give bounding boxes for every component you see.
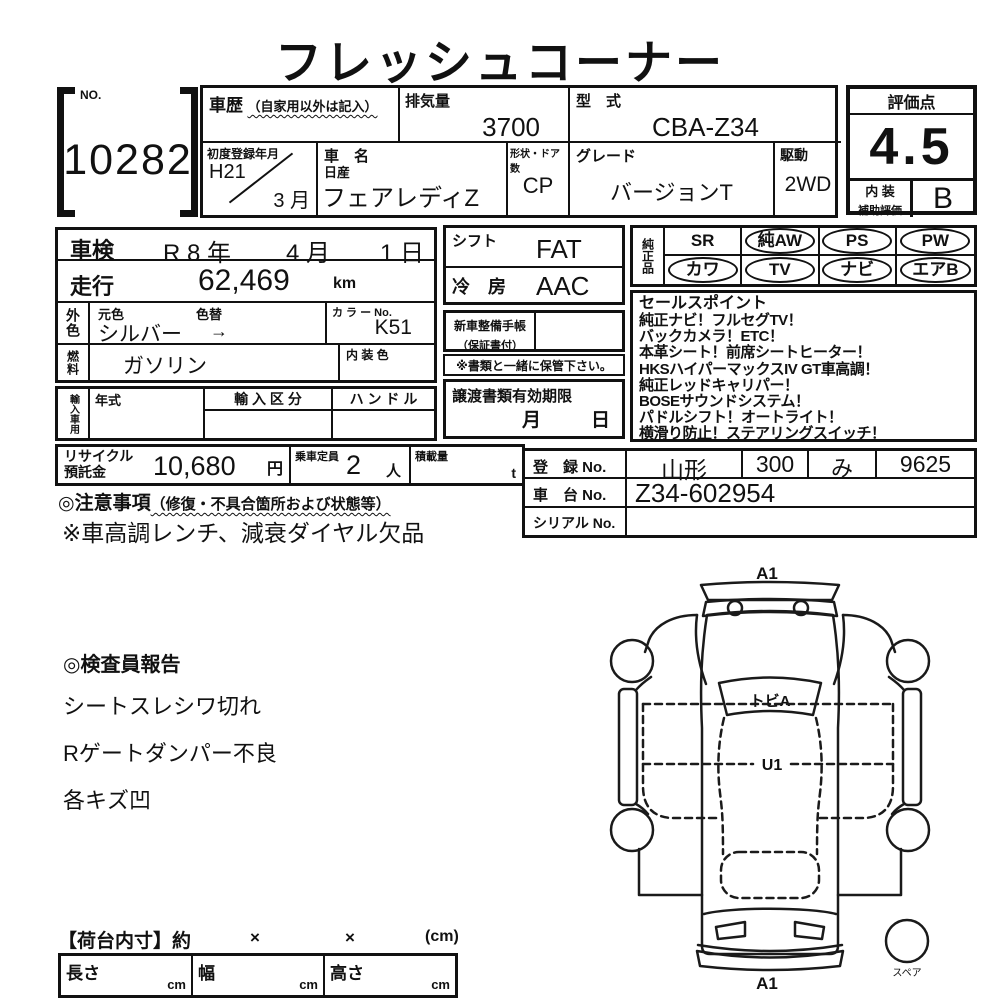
displacement-cell: 排気量 3700 bbox=[400, 88, 570, 143]
history-label: 車歴 bbox=[209, 96, 243, 115]
cargo-height-cell: 高さ cm bbox=[325, 956, 455, 995]
first-reg-label: 初度登録年月 bbox=[207, 145, 279, 162]
genuine-parts-grid: SR 純AW PS PW カワ TV ナビ エアB bbox=[665, 228, 974, 284]
chassis-number: Z34-602954 bbox=[625, 479, 974, 508]
import-division-cell: 輸 入 区 分 bbox=[205, 389, 333, 438]
chassis-row: 車 台 No. Z34-602954 bbox=[525, 479, 974, 508]
interior-color-cell: 内 装 色 bbox=[338, 345, 434, 380]
history-note: （自家用以外は記入） bbox=[247, 99, 377, 114]
sales-point-line: バックカメラ！ETC！ bbox=[639, 329, 968, 345]
capacity-cell: 乗車定員 2 人 bbox=[291, 447, 411, 483]
genuine-parts-side-label: 純正品 bbox=[633, 228, 665, 284]
body-door-cell: 形状・ドア数 CP bbox=[508, 143, 570, 215]
auction-sheet: フレッシュコーナー NO. 10282 車歴 （自家用以外は記入） 排気量 37… bbox=[0, 0, 1000, 1000]
cargo-length-cell: 長さ cm bbox=[61, 956, 193, 995]
fuel-value: ガソリン bbox=[123, 350, 207, 380]
registration-number: 9625 bbox=[875, 451, 974, 479]
diagram-label-windshield: トビA bbox=[750, 693, 791, 710]
car-damage-diagram: A1 トビA U1 A1 bbox=[595, 558, 985, 993]
ac-value: AAC bbox=[536, 271, 589, 302]
diagram-label-center: U1 bbox=[762, 757, 783, 774]
part-kawa: カワ bbox=[668, 257, 738, 283]
diagram-label-spare: スペア bbox=[892, 968, 921, 979]
cargo-table: 長さ cm 幅 cm 高さ cm bbox=[58, 953, 458, 998]
spare-tire-icon bbox=[886, 920, 928, 962]
registration-label: 登 録 No. bbox=[533, 456, 606, 477]
diagram-label-bottom: A1 bbox=[756, 974, 778, 993]
rating-score: 4.5 bbox=[850, 115, 973, 181]
import-side-label: 輸入車用 bbox=[58, 389, 90, 438]
cargo-x2: × bbox=[345, 928, 355, 948]
color-arrow: → bbox=[210, 321, 228, 342]
cargo-length-label: 長さ bbox=[66, 959, 100, 984]
grade-value: バージョンT bbox=[570, 175, 773, 207]
service-book-note: ※書類と一緒に保管下さい。 bbox=[443, 354, 625, 376]
chassis-label: 車 台 No. bbox=[533, 484, 606, 505]
lot-number: 10282 bbox=[60, 136, 196, 185]
sales-point-line: 本革シート！前席シートヒーター！ bbox=[639, 345, 968, 361]
color-no-cell: カ ラ ー No. K51 bbox=[325, 303, 434, 343]
body-door-label: 形状・ドア数 bbox=[510, 145, 568, 175]
mileage-unit: km bbox=[333, 275, 356, 293]
mileage-label: 走行 bbox=[70, 269, 114, 301]
grade-label: グレード bbox=[576, 145, 636, 166]
drive-value: 2WD bbox=[775, 173, 841, 197]
registration-class: 300 bbox=[741, 451, 807, 479]
registration-row: 登 録 No. 山形 300 み 9625 bbox=[525, 451, 974, 479]
page-title: フレッシュコーナー bbox=[0, 24, 1000, 93]
ac-label: 冷 房 bbox=[452, 273, 506, 299]
shift-label: シフト bbox=[452, 230, 497, 251]
notes-title-note: （修復・不具合箇所および状態等） bbox=[151, 496, 391, 513]
fuel-row: 燃料 ガソリン 内 装 色 bbox=[58, 345, 434, 380]
cargo-length-unit: cm bbox=[167, 977, 186, 992]
diagram-side-right bbox=[834, 615, 929, 895]
notes-title: ◎注意事項 bbox=[58, 493, 151, 514]
import-division-label: 輸 入 区 分 bbox=[205, 389, 331, 411]
part-pw: PW bbox=[900, 228, 970, 254]
mileage-value: 62,469 bbox=[198, 264, 290, 298]
transfer-docs-label: 譲渡書類有効期限 bbox=[452, 385, 572, 406]
vehicle-info-table: 車歴 （自家用以外は記入） 排気量 3700 型 式 CBA-Z34 初度登録年… bbox=[200, 85, 838, 218]
cargo-x1: × bbox=[250, 928, 260, 948]
registration-kana: み bbox=[807, 451, 875, 479]
recycle-unit: 円 bbox=[267, 455, 283, 479]
cargo-width-label: 幅 bbox=[198, 959, 215, 984]
cargo-unit: (cm) bbox=[425, 928, 459, 946]
model-code-cell: 型 式 CBA-Z34 bbox=[570, 88, 841, 143]
cargo-width-unit: cm bbox=[299, 977, 318, 992]
shift-cell: シフト FAT bbox=[446, 228, 622, 268]
serial-number bbox=[625, 508, 974, 535]
import-handle-label: ハ ン ド ル bbox=[333, 389, 434, 411]
sales-point-line: BOSEサウンドシステム！ bbox=[639, 394, 968, 410]
lot-no-label: NO. bbox=[80, 88, 101, 102]
inspector-report: ◎検査員報告 シートスレシワ切れ Rゲートダンパー不良 各キズ凹 bbox=[63, 648, 277, 817]
genuine-parts-box: 純正品 SR 純AW PS PW カワ TV ナビ エアB bbox=[630, 225, 977, 287]
mileage-row: 走行 62,469 km bbox=[58, 261, 434, 303]
shift-value: FAT bbox=[536, 234, 582, 265]
capacity-unit: 人 bbox=[386, 460, 401, 481]
registration-area: 山形 bbox=[625, 451, 741, 479]
model-code-value: CBA-Z34 bbox=[570, 112, 841, 143]
transfer-month-label: 月 bbox=[522, 405, 541, 432]
color-value: シルバー bbox=[98, 318, 182, 348]
registration-table: 登 録 No. 山形 300 み 9625 車 台 No. Z34-602954… bbox=[522, 448, 977, 538]
first-reg-year: H21 bbox=[209, 161, 246, 184]
service-book-box: 新車整備手帳 （保証書付） bbox=[443, 310, 625, 352]
recycle-value: 10,680 bbox=[153, 451, 236, 482]
cargo-header: 【荷台内寸】約 × × (cm) bbox=[58, 926, 458, 953]
diagram-label-top: A1 bbox=[756, 564, 778, 583]
color-row: 外色 元色 色替 シルバー → カ ラ ー No. K51 bbox=[58, 303, 434, 345]
recycle-row: リサイクル 預託金 10,680 円 乗車定員 2 人 積載量 t bbox=[55, 444, 525, 486]
shaken-row: 車検 R 8 年 4 月 1 日 bbox=[58, 230, 434, 261]
import-table: 輸入車用 年式 輸 入 区 分 ハ ン ド ル bbox=[55, 386, 437, 441]
inspector-report-line: シートスレシワ切れ bbox=[63, 691, 277, 723]
inspector-report-title: ◎検査員報告 bbox=[63, 648, 277, 677]
transfer-docs-box: 譲渡書類有効期限 月 日 bbox=[443, 379, 625, 439]
inspector-report-line: 各キズ凹 bbox=[63, 785, 277, 817]
diagram-side-left bbox=[611, 615, 706, 895]
color-no-value: K51 bbox=[375, 316, 412, 340]
load-label: 積載量 bbox=[415, 448, 448, 464]
drive-label: 駆動 bbox=[780, 145, 808, 165]
capacity-value: 2 bbox=[346, 450, 361, 481]
inspector-report-line: Rゲートダンパー不良 bbox=[63, 738, 277, 770]
recycle-cell: リサイクル 預託金 10,680 円 bbox=[58, 447, 291, 483]
sales-point-line: 純正レッドキャリパー！ bbox=[639, 378, 968, 394]
car-name-cell: 車 名 日産 フェアレディZ bbox=[318, 143, 508, 215]
part-navi: ナビ bbox=[822, 257, 892, 283]
rating-label: 評価点 bbox=[850, 89, 973, 115]
import-handle-cell: ハ ン ド ル bbox=[333, 389, 434, 438]
load-cell: 積載量 t bbox=[411, 447, 522, 483]
first-reg-cell: 初度登録年月 H21 3 月 bbox=[203, 143, 318, 215]
car-name-value: フェアレディZ bbox=[322, 178, 479, 213]
sales-points-title: セールスポイント bbox=[639, 295, 968, 313]
fuel-side-label: 燃料 bbox=[58, 345, 90, 380]
ac-cell: 冷 房 AAC bbox=[446, 268, 622, 302]
part-tv: TV bbox=[745, 257, 815, 283]
load-unit: t bbox=[511, 465, 516, 481]
cargo-height-label: 高さ bbox=[330, 959, 364, 984]
part-sr: SR bbox=[680, 230, 726, 252]
part-ps: PS bbox=[822, 228, 892, 254]
interior-color-label: 内 装 色 bbox=[346, 346, 389, 363]
capacity-label: 乗車定員 bbox=[295, 448, 339, 464]
displacement-value: 3700 bbox=[482, 112, 540, 143]
serial-row: シリアル No. bbox=[525, 508, 974, 535]
left-info-table: 車検 R 8 年 4 月 1 日 走行 62,469 km 外色 元色 色替 シ… bbox=[55, 227, 437, 383]
history-cell: 車歴 （自家用以外は記入） bbox=[203, 88, 400, 143]
sales-point-line: 横滑り防止！ステアリングスイッチ！ bbox=[639, 426, 968, 442]
sales-point-line: パドルシフト！オートライト！ bbox=[639, 410, 968, 426]
grade-cell: グレード バージョンT bbox=[570, 143, 775, 215]
first-reg-month: 3 月 bbox=[273, 184, 310, 213]
interior-rating-score: B bbox=[913, 181, 973, 217]
model-code-label: 型 式 bbox=[576, 90, 621, 111]
service-book-label: 新車整備手帳 （保証書付） bbox=[446, 313, 536, 349]
recycle-label: リサイクル 預託金 bbox=[64, 448, 133, 480]
sales-point-line: HKSハイパーマックスIV GT車高調！ bbox=[639, 362, 968, 378]
drive-cell: 駆動 2WD bbox=[775, 143, 841, 215]
cargo-width-cell: 幅 cm bbox=[193, 956, 325, 995]
sales-points-box: セールスポイント 純正ナビ！フルセグTV！ バックカメラ！ETC！ 本革シート！… bbox=[630, 290, 977, 442]
import-year-label: 年式 bbox=[95, 390, 121, 409]
part-airbag: エアB bbox=[900, 257, 970, 283]
part-aw: 純AW bbox=[745, 228, 815, 254]
cargo-title: 【荷台内寸】約 bbox=[58, 931, 191, 952]
displacement-label: 排気量 bbox=[405, 90, 450, 111]
notes-line: ※車高調レンチ、減衰ダイヤル欠品 bbox=[62, 514, 424, 548]
transfer-day-label: 日 bbox=[591, 405, 610, 432]
shift-ac-box: シフト FAT 冷 房 AAC bbox=[443, 225, 625, 305]
notes-title-row: ◎注意事項（修復・不具合箇所および状態等） bbox=[58, 488, 391, 515]
body-door-value: CP bbox=[508, 173, 568, 199]
import-year-cell: 年式 bbox=[90, 389, 205, 438]
color-side-label: 外色 bbox=[58, 303, 90, 343]
serial-label: シリアル No. bbox=[533, 513, 615, 533]
interior-rating-label: 内 装 補助評価 bbox=[850, 181, 913, 217]
rating-box: 評価点 4.5 内 装 補助評価 B bbox=[846, 85, 977, 215]
cargo-height-unit: cm bbox=[431, 977, 450, 992]
sales-point-line: 純正ナビ！フルセグTV！ bbox=[639, 313, 968, 329]
